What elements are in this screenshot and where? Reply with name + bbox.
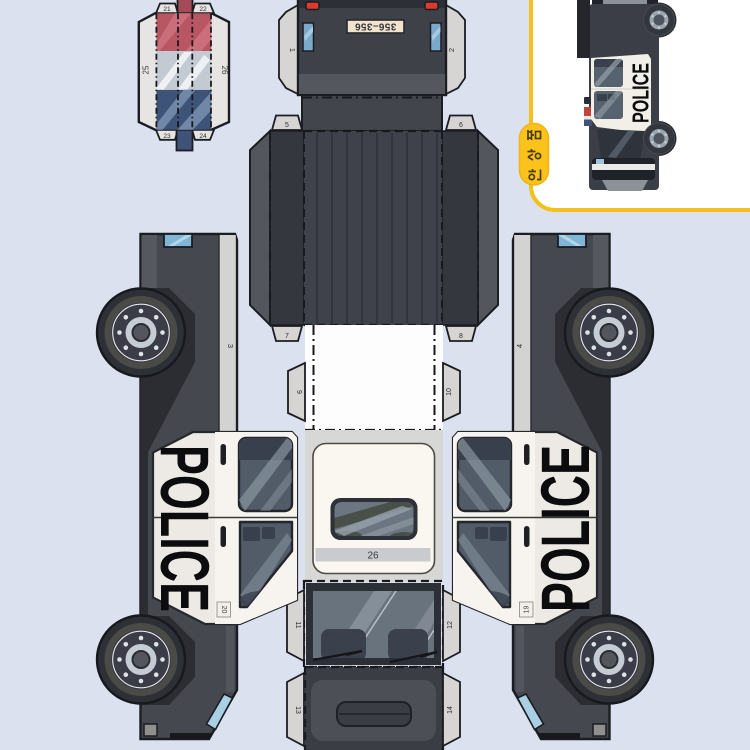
- svg-text:23: 23: [163, 133, 171, 140]
- svg-text:12: 12: [447, 621, 454, 629]
- svg-text:356–356: 356–356: [355, 20, 397, 31]
- svg-text:7: 7: [285, 333, 289, 340]
- svg-text:POLICE: POLICE: [527, 445, 604, 612]
- svg-text:19: 19: [523, 606, 530, 614]
- svg-text:20: 20: [220, 606, 227, 614]
- svg-text:10: 10: [446, 388, 453, 396]
- svg-text:4: 4: [515, 344, 524, 348]
- svg-text:11: 11: [294, 621, 301, 628]
- svg-text:9: 9: [295, 390, 302, 394]
- svg-text:25: 25: [142, 65, 151, 74]
- svg-text:2: 2: [447, 48, 456, 52]
- svg-text:6: 6: [459, 122, 463, 129]
- svg-text:8: 8: [459, 333, 463, 340]
- svg-text:22: 22: [199, 6, 207, 13]
- svg-text:POLICE: POLICE: [628, 63, 654, 123]
- svg-text:3: 3: [226, 344, 235, 348]
- svg-text:14: 14: [447, 706, 454, 714]
- svg-text:5: 5: [285, 122, 289, 129]
- svg-text:26: 26: [220, 66, 229, 75]
- svg-text:26: 26: [367, 551, 379, 562]
- svg-text:24: 24: [199, 133, 207, 140]
- svg-text:21: 21: [163, 6, 171, 13]
- svg-text:POLICE: POLICE: [146, 445, 223, 612]
- svg-text:1: 1: [288, 48, 297, 52]
- svg-text:13: 13: [294, 706, 301, 714]
